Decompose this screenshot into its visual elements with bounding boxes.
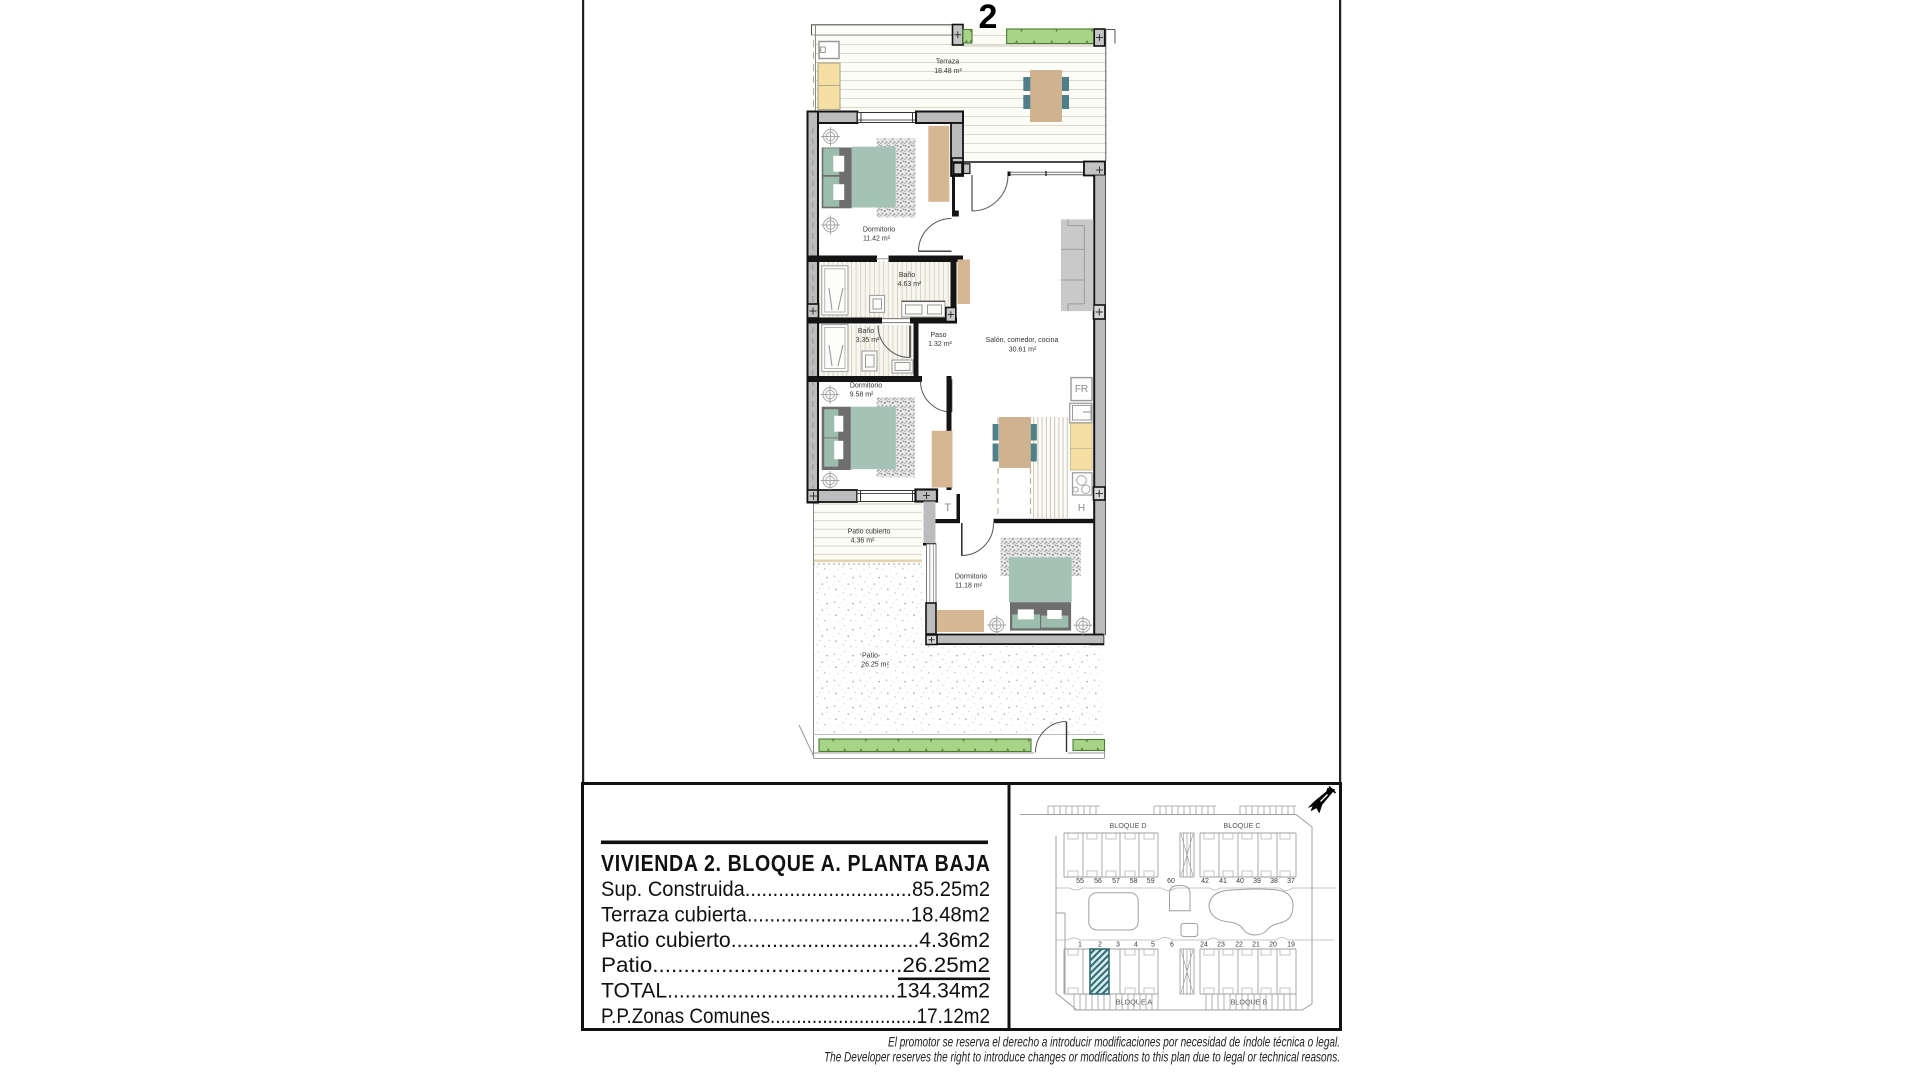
svg-text:11.42 m²: 11.42 m² <box>863 236 891 243</box>
svg-text:1: 1 <box>1078 942 1082 949</box>
svg-text:18.48 m²: 18.48 m² <box>934 68 962 75</box>
svg-text:42: 42 <box>1201 878 1209 885</box>
svg-text:59: 59 <box>1147 878 1155 885</box>
svg-text:4.36 m²: 4.36 m² <box>851 538 875 545</box>
svg-text:P.P.Zonas Comunes.............: P.P.Zonas Comunes.......................… <box>601 1004 990 1028</box>
svg-text:24: 24 <box>1200 942 1208 949</box>
svg-text:Sup. Construida...............: Sup. Construida.........................… <box>601 877 990 901</box>
svg-text:60: 60 <box>1167 878 1175 885</box>
svg-text:58: 58 <box>1130 878 1138 885</box>
svg-text:21: 21 <box>1252 942 1260 949</box>
svg-text:40: 40 <box>1236 878 1244 885</box>
svg-text:30.61 m²: 30.61 m² <box>1009 347 1037 354</box>
svg-text:T: T <box>944 502 951 514</box>
svg-text:Patio cubierto................: Patio cubierto..........................… <box>601 928 990 952</box>
svg-text:39: 39 <box>1253 878 1261 885</box>
svg-text:Patio.........................: Patio...................................… <box>601 953 990 977</box>
svg-text:BLOQUE C: BLOQUE C <box>1223 821 1260 830</box>
svg-text:22: 22 <box>1235 942 1243 949</box>
svg-text:Dormitorio: Dormitorio <box>955 574 987 581</box>
svg-text:VIVIENDA 2. BLOQUE A. PLANTA B: VIVIENDA 2. BLOQUE A. PLANTA BAJA <box>601 851 990 877</box>
svg-text:Salón, comedor, cocina: Salón, comedor, cocina <box>986 337 1059 344</box>
svg-text:El promotor se reserva el dere: El promotor se reserva el derecho a intr… <box>888 1035 1340 1050</box>
svg-text:Dormitorio: Dormitorio <box>850 383 882 390</box>
svg-text:9.58 m²: 9.58 m² <box>850 392 874 399</box>
svg-text:Baño: Baño <box>858 328 874 335</box>
svg-text:H: H <box>1078 503 1085 514</box>
svg-text:57: 57 <box>1112 878 1120 885</box>
svg-text:26.25 m²: 26.25 m² <box>861 662 889 669</box>
svg-text:FR: FR <box>1075 384 1088 395</box>
svg-text:Patio: Patio <box>862 653 878 660</box>
svg-text:BLOQUE D: BLOQUE D <box>1109 821 1146 830</box>
svg-text:56: 56 <box>1094 878 1102 885</box>
svg-text:3: 3 <box>1116 942 1120 949</box>
svg-text:19: 19 <box>1287 942 1295 949</box>
svg-text:5: 5 <box>1151 942 1155 949</box>
svg-text:38: 38 <box>1270 878 1278 885</box>
svg-text:The Developer reserves the rig: The Developer reserves the right to intr… <box>824 1050 1340 1065</box>
svg-text:4: 4 <box>1134 942 1138 949</box>
svg-text:55: 55 <box>1076 878 1084 885</box>
svg-text:Terraza: Terraza <box>936 59 959 66</box>
svg-text:4.63 m²: 4.63 m² <box>898 281 922 288</box>
svg-text:Dormitorio: Dormitorio <box>863 227 895 234</box>
svg-text:6: 6 <box>1170 942 1174 949</box>
svg-text:20: 20 <box>1269 942 1277 949</box>
svg-text:23: 23 <box>1217 942 1225 949</box>
svg-text:37: 37 <box>1287 878 1295 885</box>
svg-text:1.32 m²: 1.32 m² <box>928 341 952 348</box>
svg-text:41: 41 <box>1219 878 1227 885</box>
svg-text:Paso: Paso <box>931 332 947 339</box>
svg-text:Patio cubierto: Patio cubierto <box>848 529 891 536</box>
svg-text:Terraza cubierta..............: Terraza cubierta........................… <box>601 903 990 927</box>
svg-text:TOTAL.........................: TOTAL...................................… <box>601 979 990 1003</box>
svg-text:11.18 m²: 11.18 m² <box>955 583 983 590</box>
svg-text:3.35 m²: 3.35 m² <box>856 337 880 344</box>
svg-text:2: 2 <box>979 0 998 36</box>
svg-text:2: 2 <box>1098 942 1102 949</box>
svg-text:Baño: Baño <box>899 272 915 279</box>
